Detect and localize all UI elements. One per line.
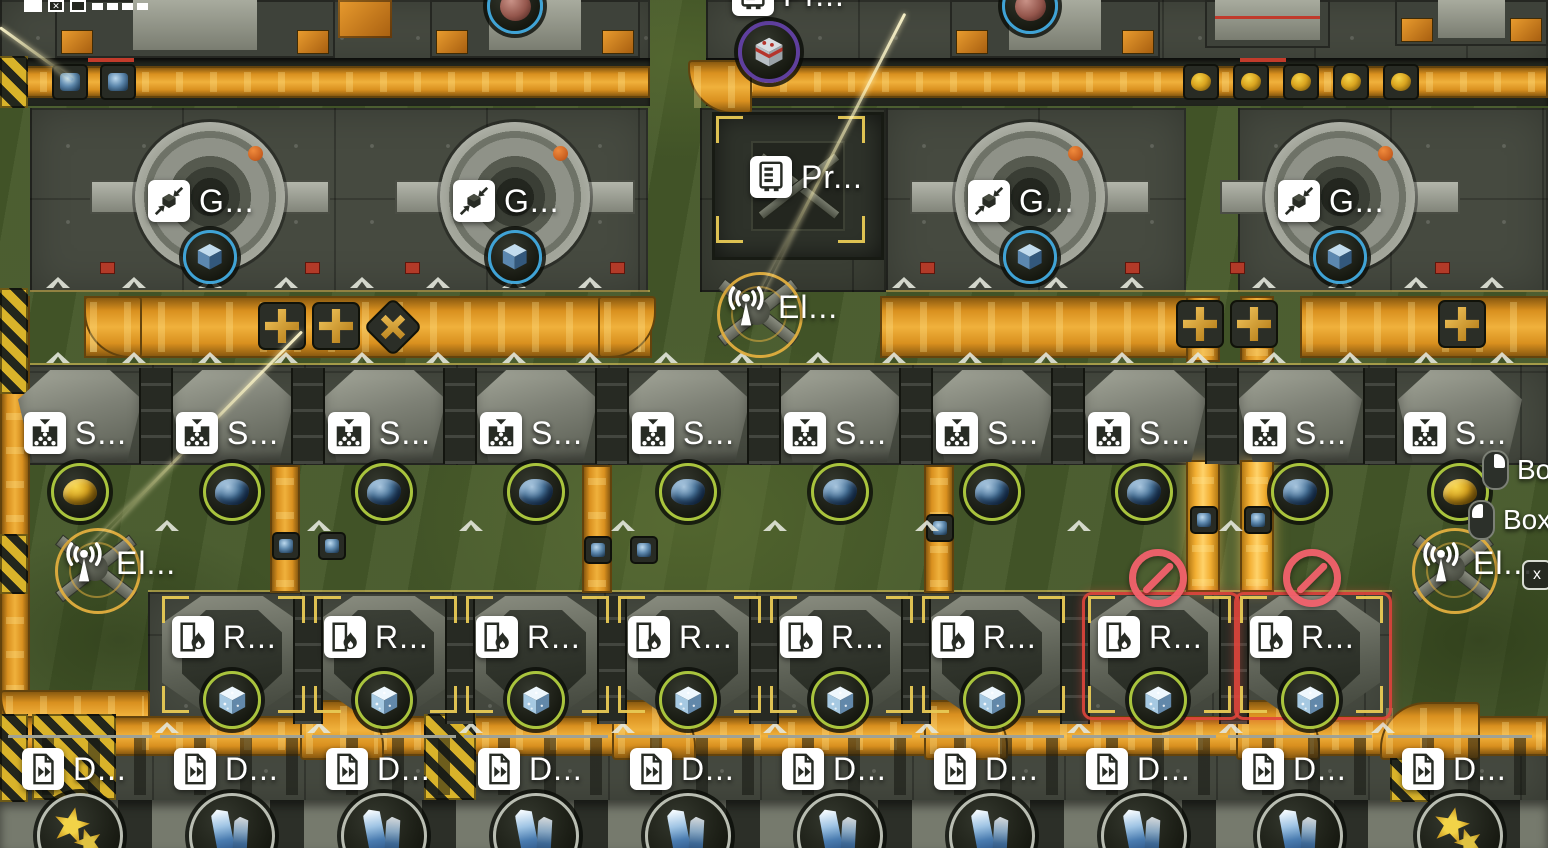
document-arrow-icon xyxy=(1242,748,1284,790)
silo-intake-icon xyxy=(480,412,522,454)
tile-corner-bracket xyxy=(1038,686,1065,713)
tile-corner-bracket xyxy=(1356,596,1383,623)
depot-label[interactable]: D... xyxy=(478,748,583,790)
sorter-label[interactable]: S... xyxy=(936,412,1039,454)
conveyor-belt-curve[interactable] xyxy=(598,296,656,358)
belt-arrow-icon xyxy=(654,352,678,363)
belt-cargo-cube xyxy=(100,64,136,100)
item-indicator-blue-ore[interactable] xyxy=(203,463,261,521)
item-indicator-ice-cube[interactable] xyxy=(811,671,869,729)
refinery-label-text: R... xyxy=(1149,619,1203,656)
belt-cargo-ore xyxy=(1383,64,1419,100)
tile-corner-bracket xyxy=(1204,596,1231,623)
furnace-flame-icon xyxy=(932,616,974,658)
belt-junction[interactable] xyxy=(312,302,360,350)
tile-corner-bracket xyxy=(430,596,457,623)
grinder-label[interactable]: G... xyxy=(453,180,560,222)
item-indicator-ice-cube[interactable] xyxy=(659,671,717,729)
sorter-label[interactable]: S... xyxy=(1244,412,1347,454)
tile-corner-bracket xyxy=(1038,596,1065,623)
machine-connector xyxy=(139,368,173,464)
prohibition-icon xyxy=(1129,549,1187,607)
machine-connector xyxy=(899,368,933,464)
depot-label-text: D... xyxy=(1293,751,1347,788)
refinery-label[interactable]: R... xyxy=(932,616,1037,658)
sorter-label[interactable]: S... xyxy=(784,412,887,454)
hint-row-box-select: Box S... xyxy=(1468,500,1548,540)
sorter-label[interactable]: S... xyxy=(480,412,583,454)
silo-intake-icon xyxy=(176,412,218,454)
sorter-label-text: S... xyxy=(835,415,887,452)
hint-label: Bo... xyxy=(1517,454,1548,486)
item-indicator-blue-cube[interactable] xyxy=(183,230,237,284)
tile-corner-bracket xyxy=(618,686,645,713)
tile-corner-bracket xyxy=(1204,686,1231,713)
item-indicator-ice-cube[interactable] xyxy=(355,671,413,729)
furnace-flame-icon xyxy=(172,616,214,658)
mouse-left-icon xyxy=(1468,500,1495,540)
grinder-label-text: G... xyxy=(1329,183,1385,220)
refinery-label[interactable]: R... xyxy=(476,616,581,658)
belt-red-marker xyxy=(1240,58,1286,62)
belt-junction[interactable] xyxy=(1438,300,1486,348)
belt-cargo-cube xyxy=(584,536,612,564)
refinery-label-text: R... xyxy=(527,619,581,656)
grinder-label-text: G... xyxy=(504,183,560,220)
item-indicator-yellow-flowers[interactable] xyxy=(1417,793,1503,848)
belt-arrow-icon xyxy=(1067,520,1091,531)
belt-cargo-cube xyxy=(1244,506,1272,534)
sorter-label-text: S... xyxy=(227,415,279,452)
refinery-label[interactable]: R... xyxy=(1098,616,1203,658)
belt-junction[interactable] xyxy=(1176,300,1224,348)
antenna-label[interactable]: El... xyxy=(61,540,176,586)
depot-label-text: D... xyxy=(1453,751,1507,788)
belt-cargo-cube xyxy=(272,532,300,560)
tile-corner-bracket xyxy=(886,596,913,623)
hud-dash-icon xyxy=(107,3,118,10)
belt-junction[interactable] xyxy=(258,302,306,350)
depot-label[interactable]: D... xyxy=(1242,748,1347,790)
silo-intake-icon xyxy=(784,412,826,454)
hint-row-box: Bo... xyxy=(1482,450,1548,490)
tile-corner-bracket xyxy=(838,216,865,243)
processor-label-text: Pr... xyxy=(783,0,845,14)
belt-arrow-icon xyxy=(611,520,635,531)
document-arrow-icon xyxy=(934,748,976,790)
belt-arrow-icon xyxy=(307,520,331,531)
refinery-label[interactable]: R... xyxy=(780,616,885,658)
tile-corner-bracket xyxy=(716,116,743,143)
mouse-right-icon xyxy=(1482,450,1509,490)
sorter-label-text: S... xyxy=(1455,415,1507,452)
tile-corner-bracket xyxy=(278,686,305,713)
sorter-label-text: S... xyxy=(1295,415,1347,452)
hud-square-icon xyxy=(24,0,42,12)
belt-junction[interactable] xyxy=(1230,300,1278,348)
item-indicator-blue-ore[interactable] xyxy=(811,463,869,521)
conveyor-belt-curve[interactable] xyxy=(84,296,142,358)
furnace-flame-icon xyxy=(1098,616,1140,658)
tile-corner-bracket xyxy=(162,686,189,713)
document-arrow-icon xyxy=(326,748,368,790)
refinery-label-text: R... xyxy=(1301,619,1355,656)
document-arrow-icon xyxy=(630,748,672,790)
hud-box-icon xyxy=(70,0,86,12)
refinery-label[interactable]: R... xyxy=(1250,616,1355,658)
conveyor-belt-vertical[interactable] xyxy=(270,465,300,593)
conveyor-belt[interactable] xyxy=(706,66,1548,98)
antenna-icon xyxy=(1418,540,1464,586)
depot-label-text: D... xyxy=(377,751,431,788)
depot-label[interactable]: D... xyxy=(1402,748,1507,790)
item-indicator-blue-crystal[interactable] xyxy=(645,793,731,848)
belt-cargo-ore xyxy=(1333,64,1369,100)
depot-label-text: D... xyxy=(529,751,583,788)
hazard-stripes xyxy=(0,534,28,594)
top-hud xyxy=(0,0,200,16)
depot-label[interactable]: D... xyxy=(174,748,279,790)
depot-label-text: D... xyxy=(73,751,127,788)
tile-corner-bracket xyxy=(1088,686,1115,713)
server-document-icon xyxy=(732,0,774,16)
machine-connector xyxy=(443,368,477,464)
tile-corner-bracket xyxy=(1240,686,1267,713)
refinery-label[interactable]: R... xyxy=(628,616,733,658)
item-indicator-blue-ore[interactable] xyxy=(963,463,1021,521)
tile-corner-bracket xyxy=(278,596,305,623)
sorter-label[interactable]: S... xyxy=(632,412,735,454)
processor-label[interactable]: Pr... xyxy=(732,0,845,16)
furnace-flame-icon xyxy=(780,616,822,658)
depot-label[interactable]: D... xyxy=(1086,748,1191,790)
depot-label-text: D... xyxy=(225,751,279,788)
conveyor-belt[interactable] xyxy=(1300,296,1548,358)
grinder-label-text: G... xyxy=(1019,183,1075,220)
document-arrow-icon xyxy=(1086,748,1128,790)
game-viewport: Bo... Box S... x G... G... G... G... Pr.… xyxy=(0,0,1548,848)
belt-cargo-ore xyxy=(1283,64,1319,100)
item-indicator-blue-crystal[interactable] xyxy=(1257,793,1343,848)
depot-label-text: D... xyxy=(1137,751,1191,788)
grinder-label[interactable]: G... xyxy=(968,180,1075,222)
silo-intake-icon xyxy=(1088,412,1130,454)
antenna-label[interactable]: El... xyxy=(723,284,838,330)
antenna-icon xyxy=(61,540,107,586)
item-indicator-blue-ore[interactable] xyxy=(659,463,717,521)
tile-corner-bracket xyxy=(734,596,761,623)
item-indicator-blue-crystal[interactable] xyxy=(189,793,275,848)
antenna-label-text: El... xyxy=(778,289,838,326)
hazard-stripes xyxy=(0,288,28,394)
item-indicator-blue-cube[interactable] xyxy=(1003,230,1057,284)
hud-dash-icon xyxy=(137,3,148,10)
refinery-label-text: R... xyxy=(223,619,277,656)
silo-intake-icon xyxy=(936,412,978,454)
belt-arrow-icon xyxy=(763,520,787,531)
belt-cargo-ore xyxy=(1183,64,1219,100)
tile-corner-bracket xyxy=(582,596,609,623)
tile-corner-bracket xyxy=(314,686,341,713)
sorter-label-text: S... xyxy=(1139,415,1191,452)
item-indicator-blue-crystal[interactable] xyxy=(1101,793,1187,848)
sorter-label[interactable]: S... xyxy=(176,412,279,454)
hint-label: Box S... xyxy=(1503,504,1548,536)
belt-arrow-icon xyxy=(806,352,830,363)
document-arrow-icon xyxy=(478,748,520,790)
furnace-flame-icon xyxy=(1250,616,1292,658)
item-indicator-yellow-flowers[interactable] xyxy=(37,793,123,848)
x-mark-icon xyxy=(48,0,64,12)
guide-line xyxy=(886,290,1548,292)
item-indicator-ice-cube[interactable] xyxy=(963,671,1021,729)
machine-connector xyxy=(747,368,781,464)
depot-label[interactable]: D... xyxy=(326,748,431,790)
item-indicator-blue-ore[interactable] xyxy=(355,463,413,521)
sorter-label[interactable]: S... xyxy=(1404,412,1507,454)
hazard-stripes xyxy=(0,56,28,108)
tile-corner-bracket xyxy=(734,686,761,713)
edge-machine[interactable] xyxy=(1205,0,1330,48)
compress-cube-icon xyxy=(968,180,1010,222)
tile-corner-bracket xyxy=(466,686,493,713)
item-indicator-yellow-ore[interactable] xyxy=(51,463,109,521)
item-indicator-blue-ore[interactable] xyxy=(1115,463,1173,521)
silo-intake-icon xyxy=(24,412,66,454)
machine-connector xyxy=(291,368,325,464)
belt-arrow-icon xyxy=(459,520,483,531)
sorter-label-text: S... xyxy=(75,415,127,452)
item-indicator-blue-ore[interactable] xyxy=(1271,463,1329,521)
belt-arrow-icon xyxy=(155,520,179,531)
item-indicator-blue-crystal[interactable] xyxy=(949,793,1035,848)
document-arrow-icon xyxy=(1402,748,1444,790)
document-arrow-icon xyxy=(22,748,64,790)
item-indicator-blue-crystal[interactable] xyxy=(797,793,883,848)
item-indicator-ice-cube[interactable] xyxy=(1281,671,1339,729)
belt-cargo-cube xyxy=(630,536,658,564)
silo-intake-icon xyxy=(1404,412,1446,454)
conveyor-belt[interactable] xyxy=(880,296,1212,358)
belt-cargo-cube xyxy=(1190,506,1218,534)
prohibition-icon xyxy=(1283,549,1341,607)
refinery-label-text: R... xyxy=(375,619,429,656)
silo-intake-icon xyxy=(1244,412,1286,454)
machine-connector xyxy=(1363,368,1397,464)
document-arrow-icon xyxy=(174,748,216,790)
item-indicator-blue-ore[interactable] xyxy=(507,463,565,521)
refinery-label-text: R... xyxy=(831,619,885,656)
belt-cargo-ore xyxy=(1233,64,1269,100)
grinder-label-text: G... xyxy=(199,183,255,220)
item-indicator-ice-cube[interactable] xyxy=(203,671,261,729)
conveyor-belt-vertical[interactable] xyxy=(582,465,612,593)
furnace-flame-icon xyxy=(628,616,670,658)
compress-cube-icon xyxy=(148,180,190,222)
depot-label[interactable]: D... xyxy=(782,748,887,790)
key-hint-x: x xyxy=(1522,560,1548,590)
edge-machine[interactable] xyxy=(1395,0,1548,46)
tile-corner-bracket xyxy=(430,686,457,713)
processor-label-text: Pr... xyxy=(801,159,863,196)
sorter-label-text: S... xyxy=(379,415,431,452)
processor-label[interactable]: Pr... xyxy=(750,156,863,198)
hud-dash-icon xyxy=(122,3,133,10)
item-indicator-ice-cube[interactable] xyxy=(1129,671,1187,729)
tile-corner-bracket xyxy=(716,216,743,243)
silo-intake-icon xyxy=(328,412,370,454)
grinder-label[interactable]: G... xyxy=(1278,180,1385,222)
machine-connector xyxy=(1051,368,1085,464)
antenna-label[interactable]: El... xyxy=(1418,540,1533,586)
sorter-label-text: S... xyxy=(531,415,583,452)
compress-cube-icon xyxy=(453,180,495,222)
document-arrow-icon xyxy=(782,748,824,790)
belt-cargo-cube xyxy=(318,532,346,560)
server-document-icon xyxy=(750,156,792,198)
machine-connector xyxy=(1205,368,1239,464)
furnace-flame-icon xyxy=(476,616,518,658)
depot-label[interactable]: D... xyxy=(22,748,127,790)
sorter-label[interactable]: S... xyxy=(24,412,127,454)
tile-corner-bracket xyxy=(770,686,797,713)
machine-connector xyxy=(595,368,629,464)
antenna-icon xyxy=(723,284,769,330)
antenna-label-text: El... xyxy=(116,545,176,582)
refinery-label-text: R... xyxy=(679,619,733,656)
depot-label[interactable]: D... xyxy=(934,748,1039,790)
item-indicator-blue-crystal[interactable] xyxy=(341,793,427,848)
tile-corner-bracket xyxy=(886,686,913,713)
item-indicator-blue-cube[interactable] xyxy=(488,230,542,284)
depot-label-text: D... xyxy=(985,751,1039,788)
tile-corner-bracket xyxy=(582,686,609,713)
item-indicator-red-crate[interactable] xyxy=(738,21,800,83)
edge-machine[interactable] xyxy=(338,0,392,38)
item-indicator-ice-cube[interactable] xyxy=(507,671,565,729)
grinder-label[interactable]: G... xyxy=(148,180,255,222)
refinery-label[interactable]: R... xyxy=(172,616,277,658)
depot-label-text: D... xyxy=(833,751,887,788)
hud-dash-icon xyxy=(92,3,103,10)
item-indicator-blue-cube[interactable] xyxy=(1313,230,1367,284)
depot-label[interactable]: D... xyxy=(630,748,735,790)
belt-arrow-icon xyxy=(46,352,70,363)
tile-corner-bracket xyxy=(1356,686,1383,713)
refinery-label[interactable]: R... xyxy=(324,616,429,658)
compress-cube-icon xyxy=(1278,180,1320,222)
belt-red-marker xyxy=(88,58,134,62)
guide-line xyxy=(30,290,650,292)
sorter-label-text: S... xyxy=(683,415,735,452)
conveyor-belt[interactable] xyxy=(0,66,650,98)
sorter-label-text: S... xyxy=(987,415,1039,452)
depot-label-text: D... xyxy=(681,751,735,788)
refinery-label-text: R... xyxy=(983,619,1037,656)
sorter-label[interactable]: S... xyxy=(1088,412,1191,454)
furnace-flame-icon xyxy=(324,616,366,658)
sorter-label[interactable]: S... xyxy=(328,412,431,454)
silo-intake-icon xyxy=(632,412,674,454)
tile-corner-bracket xyxy=(922,686,949,713)
item-indicator-blue-crystal[interactable] xyxy=(493,793,579,848)
